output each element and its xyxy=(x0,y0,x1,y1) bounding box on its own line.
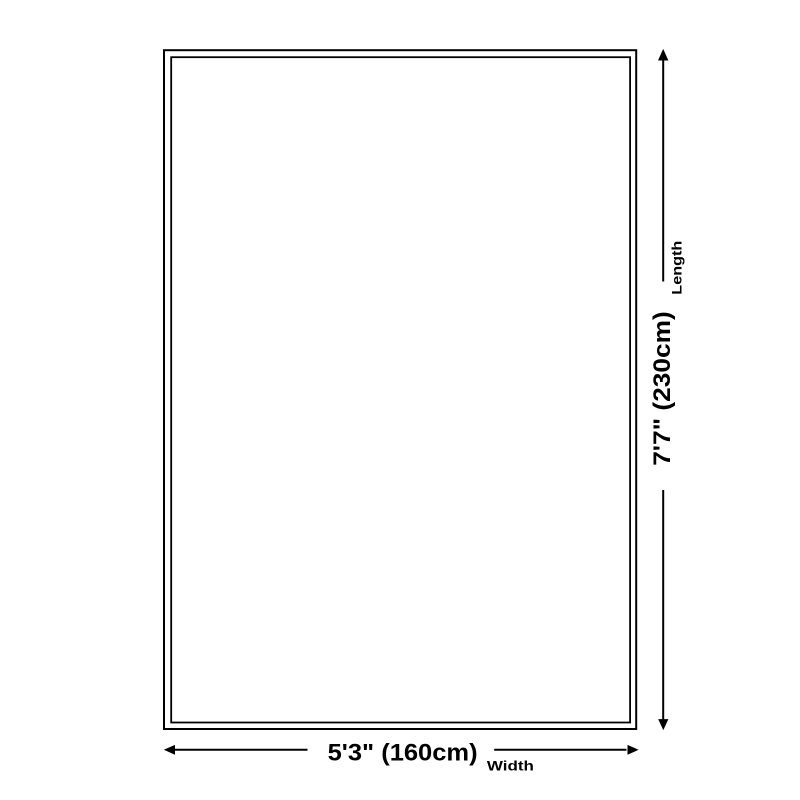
svg-text:7'7" (230cm): 7'7" (230cm) xyxy=(649,311,676,466)
svg-text:5'3" (160cm): 5'3" (160cm) xyxy=(328,740,478,767)
svg-text:Width: Width xyxy=(487,758,534,774)
svg-text:Length: Length xyxy=(668,241,684,295)
